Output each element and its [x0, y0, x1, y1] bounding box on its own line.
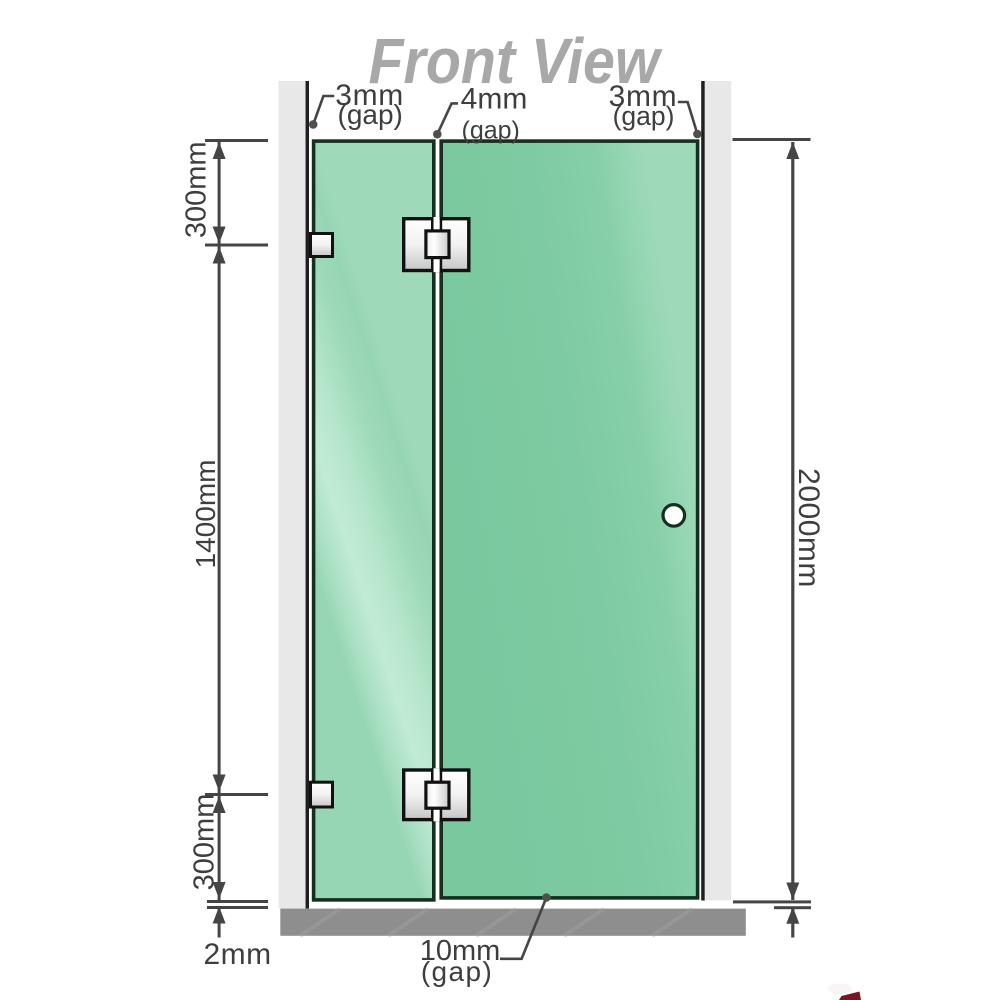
svg-text:4mm: 4mm — [461, 83, 528, 116]
svg-text:300mm: 300mm — [181, 141, 213, 238]
svg-text:(gap): (gap) — [613, 101, 675, 131]
svg-text:(gap): (gap) — [462, 117, 520, 145]
svg-text:300mm: 300mm — [189, 794, 221, 891]
svg-text:2mm: 2mm — [204, 938, 272, 971]
svg-text:(gap): (gap) — [338, 99, 403, 130]
svg-text:2000mm: 2000mm — [792, 468, 825, 588]
svg-text:(gap): (gap) — [421, 956, 493, 987]
svg-text:1400mm: 1400mm — [190, 460, 221, 569]
